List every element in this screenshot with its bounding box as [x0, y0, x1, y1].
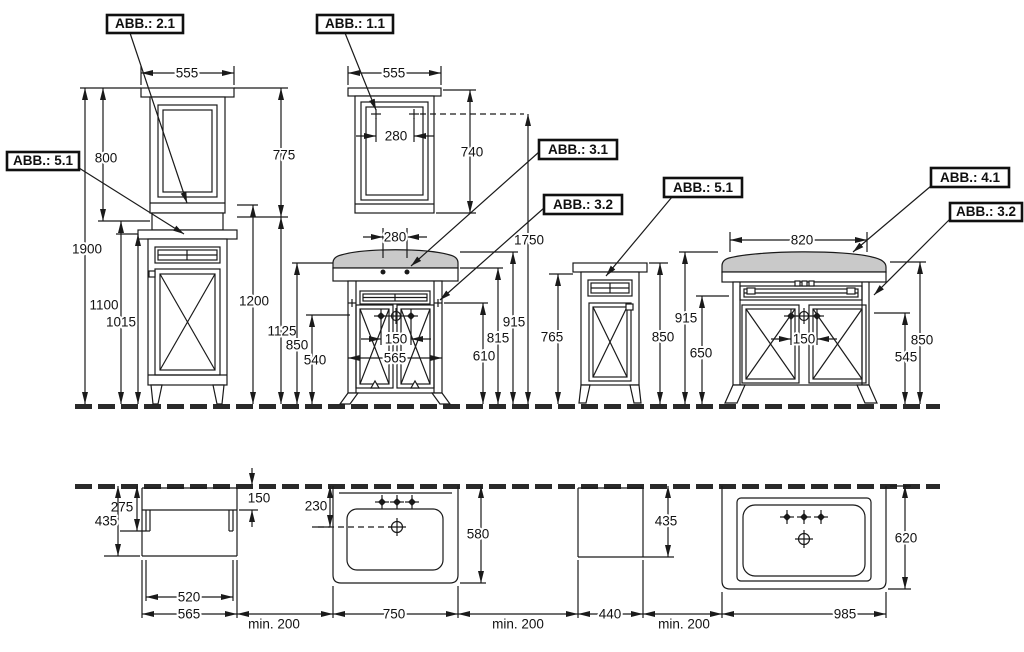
dim-gap-1: min. 200 — [248, 617, 300, 632]
dim-765: 765 — [541, 330, 564, 345]
dim-v750-holes: 280 — [384, 230, 407, 245]
dim-815: 815 — [487, 331, 510, 346]
dim-mirror-height: 740 — [461, 145, 484, 160]
dim-610: 610 — [473, 349, 496, 364]
leg — [630, 385, 641, 403]
dim-tall-width: 555 — [176, 66, 199, 81]
leg — [579, 385, 590, 403]
dim-1125: 1125 — [267, 324, 296, 339]
drawing-rect — [138, 230, 237, 239]
drawing-rect — [333, 268, 458, 281]
dim-plan-side-435: 435 — [655, 514, 678, 529]
dim-820: 820 — [791, 233, 814, 248]
plan-side-cabinet — [578, 488, 643, 557]
door-latch — [626, 304, 633, 310]
mount-dot — [381, 270, 386, 275]
faucet-hole-icon — [405, 495, 419, 509]
leg — [857, 385, 877, 403]
drawing-rect — [150, 97, 225, 213]
elevation-vanity-985 — [722, 252, 886, 403]
dim-plan-230: 230 — [305, 499, 328, 514]
callout-abb-3-1: ABB.: 3.1 — [548, 142, 609, 157]
dim-v750-faucet: 150 — [385, 332, 408, 347]
plan-tall-cabinet — [142, 488, 237, 556]
drawing-rect — [809, 281, 814, 286]
dim-plan-440: 440 — [599, 607, 622, 622]
callout-abb-2-1: ABB.: 2.1 — [115, 16, 176, 31]
drawing-rect — [347, 509, 443, 570]
dim-plan-150: 150 — [248, 491, 271, 506]
drawing-rect — [747, 288, 755, 294]
dim-r915: 915 — [675, 311, 698, 326]
dim-tall-base-height: 1100 — [89, 298, 118, 313]
callout-abb-5-1-left: ABB.: 5.1 — [13, 153, 74, 168]
leg — [340, 393, 358, 404]
dim-plan-620: 620 — [895, 531, 918, 546]
washbasin-top — [722, 252, 886, 272]
leg — [151, 385, 162, 404]
dim-545: 545 — [895, 350, 918, 365]
door-latch — [149, 271, 155, 277]
dim-tall-base-inner: 1015 — [106, 315, 136, 330]
dim-w150: 150 — [793, 332, 816, 347]
elevation-vanity-750 — [333, 250, 458, 404]
furniture-dimension-drawing: 555 555 1900 800 1100 1015 1200 775 1125… — [0, 0, 1024, 652]
leader-line — [853, 186, 931, 252]
dim-plan-435: 435 — [95, 514, 118, 529]
callout-abb-3-2-right: ABB.: 3.2 — [956, 204, 1016, 219]
drawing-canvas: 555 555 1900 800 1100 1015 1200 775 1125… — [0, 0, 1024, 652]
dim-mirror-width: 555 — [383, 66, 406, 81]
leg — [432, 393, 450, 404]
leg — [213, 385, 224, 404]
dim-mirror-holes: 280 — [385, 129, 408, 144]
dim-s850: 850 — [652, 330, 675, 345]
leg — [725, 385, 745, 403]
callout-abb-1-1: ABB.: 1.1 — [325, 16, 386, 31]
washbasin-top — [333, 250, 458, 268]
dim-w850: 850 — [911, 333, 934, 348]
dim-plan-565: 565 — [178, 607, 201, 622]
dim-plan-750: 750 — [383, 607, 406, 622]
drawing-rect — [152, 213, 223, 230]
dim-plan-275: 275 — [111, 500, 134, 515]
dim-plan-985: 985 — [834, 607, 857, 622]
drawing-rect — [847, 288, 855, 294]
dim-v915: 915 — [503, 315, 526, 330]
callout-abb-3-2-mid: ABB.: 3.2 — [553, 197, 613, 212]
drawing-rect — [795, 281, 800, 286]
leader-line — [874, 219, 950, 295]
dim-tall-upper-height: 800 — [95, 151, 118, 166]
drawing-rect — [802, 281, 807, 286]
dim-1200: 1200 — [239, 294, 269, 309]
dim-540: 540 — [304, 353, 327, 368]
drawing-rect — [141, 88, 234, 97]
callout-abb-4-1: ABB.: 4.1 — [940, 170, 1001, 185]
plan-washbasin-750 — [318, 486, 458, 583]
dim-tall-total-height: 1900 — [72, 242, 102, 257]
dim-gap-2: min. 200 — [492, 617, 544, 632]
dim-plan-580: 580 — [467, 527, 490, 542]
callout-abb-5-1-mid: ABB.: 5.1 — [673, 180, 734, 195]
mount-dot — [405, 270, 410, 275]
elevation-mirror — [348, 88, 441, 213]
dim-650: 650 — [690, 346, 713, 361]
plan-washbasin-985 — [722, 486, 886, 589]
faucet-hole-icon — [375, 495, 389, 509]
elevation-side-cabinet — [573, 263, 647, 403]
dim-v750-height: 850 — [286, 338, 309, 353]
drawing-rect — [348, 88, 441, 96]
dim-gap-3: min. 200 — [658, 617, 710, 632]
dim-mount-height: 1750 — [514, 233, 544, 248]
faucet-hole-icon — [390, 495, 404, 509]
dim-v750-body: 565 — [384, 351, 407, 366]
elevation-tall-cabinet — [138, 88, 237, 404]
dim-plan-520: 520 — [178, 590, 201, 605]
dim-775: 775 — [273, 148, 296, 163]
